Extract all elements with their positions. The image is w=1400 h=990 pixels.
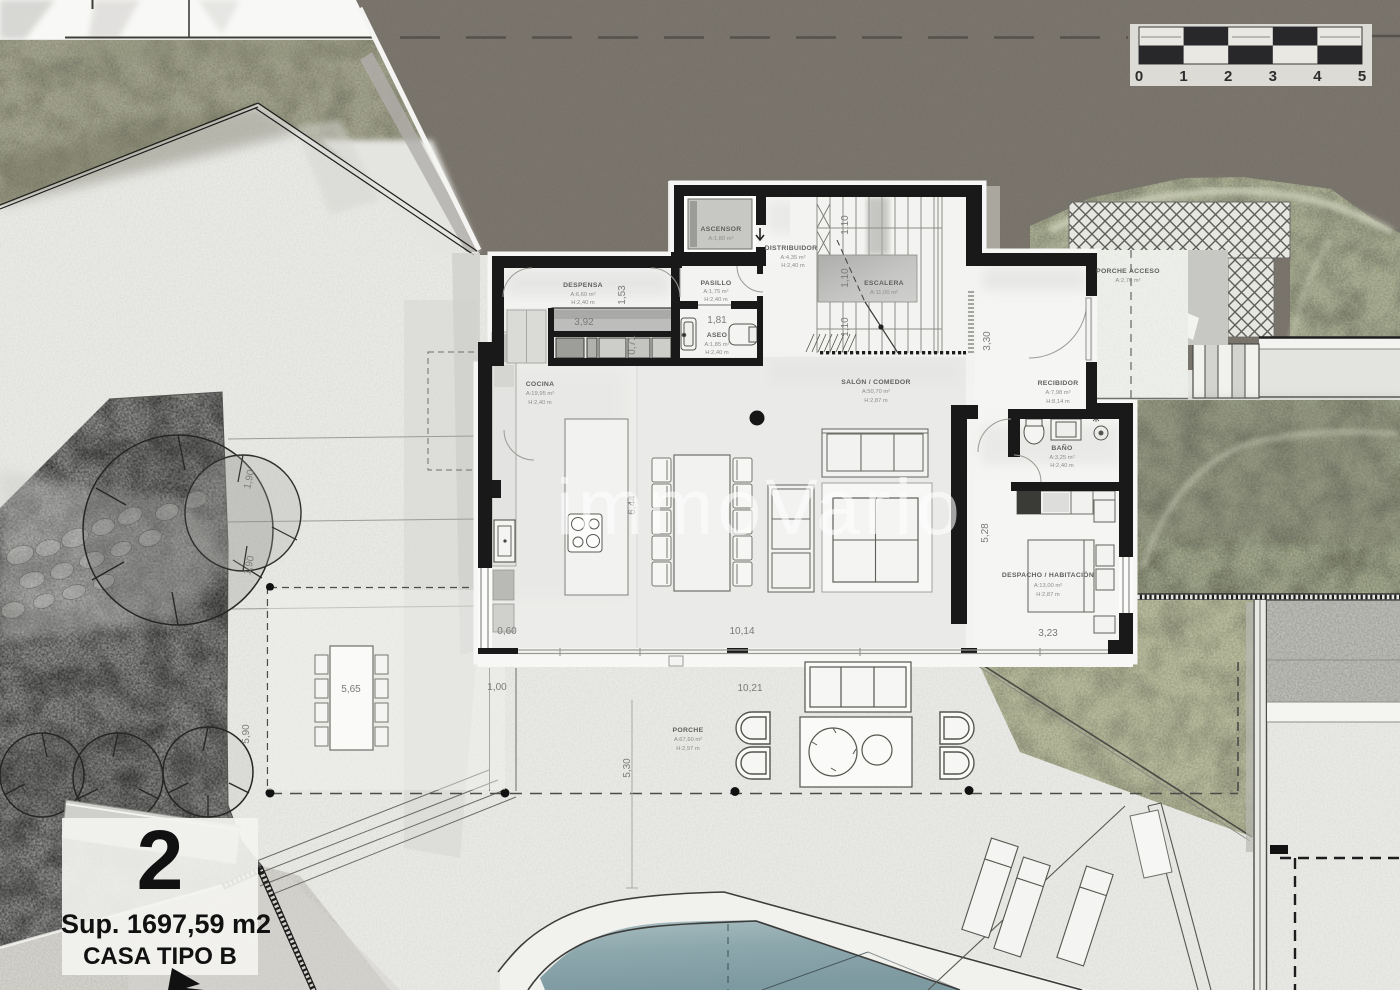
svg-text:DISTRIBUIDOR: DISTRIBUIDOR [765,245,818,252]
svg-text:4: 4 [1313,68,1322,85]
svg-text:ESCALERA: ESCALERA [864,280,904,287]
svg-text:0,71: 0,71 [627,335,638,355]
svg-text:H:2,40 m: H:2,40 m [1050,463,1074,469]
svg-text:RECIBIDOR: RECIBIDOR [1038,380,1079,387]
svg-text:10,21: 10,21 [737,683,762,694]
svg-text:0,60: 0,60 [497,626,517,637]
svg-text:2: 2 [1224,68,1232,85]
svg-text:DESPENSA: DESPENSA [563,282,603,289]
svg-text:5,90: 5,90 [241,724,252,744]
svg-text:3: 3 [1269,68,1277,85]
svg-text:H:2,97 m: H:2,97 m [676,746,700,752]
svg-text:1,81: 1,81 [707,315,727,326]
svg-text:SALÓN / COMEDOR: SALÓN / COMEDOR [841,377,910,386]
svg-text:PASILLO: PASILLO [700,280,731,287]
svg-text:A:7,98 m²: A:7,98 m² [1045,390,1070,396]
svg-text:A:1,80 m²: A:1,80 m² [708,236,733,242]
svg-text:BAÑO: BAÑO [1051,443,1072,452]
svg-text:H:2,87 m: H:2,87 m [1036,592,1060,598]
svg-text:A:6,60 m²: A:6,60 m² [570,292,595,298]
svg-text:PORCHE: PORCHE [673,727,704,734]
svg-text:ASEO: ASEO [707,332,727,339]
svg-text:A:3,25 m²: A:3,25 m² [1049,455,1074,461]
svg-text:COCINA: COCINA [526,381,555,388]
svg-text:CASA TIPO B: CASA TIPO B [83,943,237,970]
svg-text:5,28: 5,28 [980,523,991,543]
svg-text:A:50,70 m²: A:50,70 m² [862,389,890,395]
svg-text:A:67,60 m²: A:67,60 m² [674,737,702,743]
svg-text:A:19,95 m²: A:19,95 m² [526,391,554,397]
svg-text:A:13,00 m²: A:13,00 m² [1034,583,1062,589]
svg-text:immoVario: immoVario [556,462,964,551]
svg-text:A:11,00 m²: A:11,00 m² [870,290,898,296]
svg-text:H:2,40 m: H:2,40 m [528,400,552,406]
svg-text:H:2,87 m: H:2,87 m [864,398,888,404]
svg-text:PORCHE ACCESO: PORCHE ACCESO [1096,268,1160,275]
svg-text:DESPACHO / HABITACIÓN: DESPACHO / HABITACIÓN [1002,570,1094,579]
svg-text:1: 1 [1179,68,1187,85]
svg-text:Sup. 1697,59 m2: Sup. 1697,59 m2 [61,909,271,939]
svg-text:3,30: 3,30 [982,331,993,351]
svg-text:A:1,85 m²: A:1,85 m² [704,342,729,348]
svg-text:0: 0 [1135,68,1143,85]
svg-text:A:4,35 m²: A:4,35 m² [780,255,805,261]
svg-text:A:2,70 m²: A:2,70 m² [1115,278,1140,284]
svg-text:1,10: 1,10 [840,317,851,337]
svg-text:3,92: 3,92 [574,317,594,328]
svg-text:1,10: 1,10 [840,268,851,288]
svg-text:ASCENSOR: ASCENSOR [701,226,742,233]
svg-text:5,30: 5,30 [622,758,633,778]
svg-text:A:1,75 m²: A:1,75 m² [703,289,728,295]
svg-text:2: 2 [137,813,184,907]
svg-text:H:2,40 m: H:2,40 m [571,300,595,306]
svg-text:3,23: 3,23 [1038,628,1058,639]
svg-text:1,53: 1,53 [617,285,628,305]
svg-text:H:2,40 m: H:2,40 m [704,297,728,303]
svg-text:5: 5 [1358,68,1366,85]
svg-text:1,00: 1,00 [487,682,507,693]
svg-text:10,14: 10,14 [729,626,754,637]
svg-text:H:2,40 m: H:2,40 m [781,263,805,269]
svg-text:1,10: 1,10 [840,215,851,235]
svg-text:H:2,40 m: H:2,40 m [705,350,729,356]
svg-text:5,65: 5,65 [341,684,361,695]
svg-text:H:8,14 m: H:8,14 m [1046,399,1070,405]
